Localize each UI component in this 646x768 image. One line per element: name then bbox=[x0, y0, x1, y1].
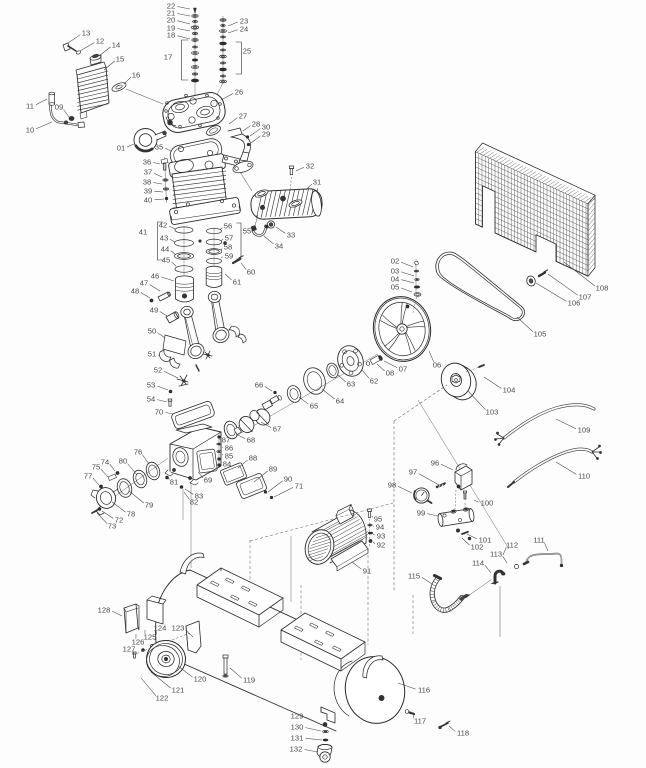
svg-text:92: 92 bbox=[377, 541, 385, 550]
svg-text:15: 15 bbox=[116, 55, 124, 64]
svg-text:38: 38 bbox=[143, 178, 151, 187]
svg-text:46: 46 bbox=[151, 272, 159, 281]
svg-text:42: 42 bbox=[159, 221, 167, 230]
svg-text:96: 96 bbox=[431, 459, 439, 468]
svg-text:97: 97 bbox=[409, 468, 417, 477]
svg-text:98: 98 bbox=[388, 481, 396, 490]
svg-text:74: 74 bbox=[101, 458, 109, 467]
svg-text:10: 10 bbox=[26, 126, 34, 135]
svg-text:111: 111 bbox=[533, 536, 545, 545]
svg-text:65: 65 bbox=[310, 402, 318, 411]
svg-text:129: 129 bbox=[291, 712, 304, 721]
svg-text:19: 19 bbox=[167, 24, 175, 33]
svg-text:115: 115 bbox=[408, 572, 420, 581]
svg-text:12: 12 bbox=[96, 37, 104, 46]
svg-text:107: 107 bbox=[579, 293, 592, 302]
svg-text:87: 87 bbox=[222, 436, 230, 445]
svg-text:35: 35 bbox=[155, 143, 163, 152]
svg-text:76: 76 bbox=[134, 448, 142, 457]
svg-text:94: 94 bbox=[376, 523, 384, 532]
svg-text:25: 25 bbox=[243, 47, 251, 56]
svg-text:68: 68 bbox=[247, 436, 255, 445]
svg-text:11: 11 bbox=[26, 102, 34, 111]
svg-text:52: 52 bbox=[154, 366, 162, 375]
svg-text:01: 01 bbox=[117, 144, 125, 153]
svg-text:31: 31 bbox=[313, 178, 321, 187]
svg-text:34: 34 bbox=[275, 242, 283, 251]
svg-text:132: 132 bbox=[290, 745, 303, 754]
svg-text:80: 80 bbox=[119, 457, 127, 466]
svg-text:117: 117 bbox=[414, 717, 426, 726]
svg-text:79: 79 bbox=[145, 501, 153, 510]
svg-text:118: 118 bbox=[457, 729, 469, 738]
svg-text:93: 93 bbox=[377, 532, 385, 541]
svg-text:44: 44 bbox=[161, 245, 169, 254]
svg-text:91: 91 bbox=[363, 567, 371, 576]
svg-text:55: 55 bbox=[243, 227, 251, 236]
svg-text:13: 13 bbox=[82, 29, 90, 38]
svg-text:61: 61 bbox=[233, 278, 241, 287]
svg-text:14: 14 bbox=[112, 41, 120, 50]
svg-text:71: 71 bbox=[295, 482, 303, 491]
svg-text:62: 62 bbox=[370, 377, 378, 386]
svg-text:81: 81 bbox=[170, 478, 178, 487]
svg-text:37: 37 bbox=[144, 168, 152, 177]
svg-text:100: 100 bbox=[481, 499, 494, 508]
svg-text:32: 32 bbox=[306, 162, 314, 171]
svg-text:69: 69 bbox=[204, 476, 212, 485]
svg-text:06: 06 bbox=[433, 361, 441, 370]
svg-text:122: 122 bbox=[156, 694, 169, 703]
svg-text:26: 26 bbox=[235, 88, 243, 97]
svg-text:50: 50 bbox=[148, 327, 156, 336]
svg-text:45: 45 bbox=[162, 256, 170, 265]
svg-text:36: 36 bbox=[143, 158, 151, 167]
svg-text:07: 07 bbox=[399, 365, 407, 374]
svg-text:39: 39 bbox=[144, 187, 152, 196]
svg-text:83: 83 bbox=[195, 492, 203, 501]
svg-text:78: 78 bbox=[127, 510, 135, 519]
svg-text:70: 70 bbox=[155, 408, 163, 417]
svg-text:102: 102 bbox=[471, 543, 484, 552]
svg-text:57: 57 bbox=[225, 234, 233, 243]
svg-text:88: 88 bbox=[249, 454, 257, 463]
svg-text:33: 33 bbox=[287, 231, 295, 240]
svg-text:64: 64 bbox=[336, 397, 344, 406]
svg-text:24: 24 bbox=[240, 25, 248, 34]
svg-text:128: 128 bbox=[98, 606, 111, 615]
svg-text:73: 73 bbox=[108, 522, 116, 531]
svg-text:114: 114 bbox=[472, 559, 484, 568]
svg-text:127: 127 bbox=[123, 645, 136, 654]
svg-text:41: 41 bbox=[139, 228, 147, 237]
svg-text:05: 05 bbox=[391, 283, 399, 292]
svg-text:125: 125 bbox=[144, 633, 157, 642]
svg-text:85: 85 bbox=[225, 452, 233, 461]
svg-text:108: 108 bbox=[596, 284, 609, 293]
svg-text:90: 90 bbox=[284, 475, 292, 484]
svg-text:131: 131 bbox=[291, 734, 304, 743]
svg-text:49: 49 bbox=[150, 306, 158, 315]
svg-text:86: 86 bbox=[225, 444, 233, 453]
svg-text:130: 130 bbox=[291, 723, 304, 732]
svg-text:30: 30 bbox=[262, 123, 270, 132]
svg-text:27: 27 bbox=[239, 112, 247, 121]
svg-text:77: 77 bbox=[84, 472, 92, 481]
svg-text:99: 99 bbox=[417, 509, 425, 518]
svg-text:120: 120 bbox=[194, 675, 207, 684]
svg-text:109: 109 bbox=[578, 426, 591, 435]
svg-text:89: 89 bbox=[269, 465, 277, 474]
svg-text:104: 104 bbox=[503, 386, 516, 395]
svg-text:113: 113 bbox=[490, 550, 502, 559]
svg-text:110: 110 bbox=[578, 472, 590, 481]
svg-text:28: 28 bbox=[252, 120, 260, 129]
svg-text:105: 105 bbox=[534, 330, 547, 339]
svg-text:48: 48 bbox=[131, 287, 139, 296]
svg-text:47: 47 bbox=[140, 279, 148, 288]
svg-text:02: 02 bbox=[391, 257, 399, 266]
svg-text:09: 09 bbox=[55, 103, 63, 112]
svg-text:112: 112 bbox=[506, 541, 518, 550]
svg-text:54: 54 bbox=[147, 395, 155, 404]
svg-text:121: 121 bbox=[172, 686, 185, 695]
svg-text:58: 58 bbox=[224, 243, 232, 252]
svg-text:53: 53 bbox=[147, 381, 155, 390]
svg-text:43: 43 bbox=[160, 234, 168, 243]
svg-text:60: 60 bbox=[247, 268, 255, 277]
svg-text:123: 123 bbox=[172, 624, 185, 633]
svg-text:75: 75 bbox=[92, 463, 100, 472]
svg-text:124: 124 bbox=[154, 624, 167, 633]
svg-text:56: 56 bbox=[224, 222, 232, 231]
svg-text:22: 22 bbox=[167, 2, 175, 11]
svg-text:67: 67 bbox=[273, 425, 281, 434]
svg-text:16: 16 bbox=[132, 71, 140, 80]
svg-text:103: 103 bbox=[486, 408, 499, 417]
svg-text:84: 84 bbox=[223, 460, 231, 469]
svg-text:95: 95 bbox=[374, 515, 382, 524]
svg-text:17: 17 bbox=[164, 53, 172, 62]
svg-text:66: 66 bbox=[255, 381, 263, 390]
svg-text:08: 08 bbox=[386, 369, 394, 378]
svg-text:116: 116 bbox=[418, 686, 430, 695]
svg-text:40: 40 bbox=[144, 196, 152, 205]
svg-text:119: 119 bbox=[243, 676, 255, 685]
svg-text:59: 59 bbox=[225, 252, 233, 261]
svg-text:51: 51 bbox=[148, 350, 156, 359]
svg-text:63: 63 bbox=[347, 380, 355, 389]
